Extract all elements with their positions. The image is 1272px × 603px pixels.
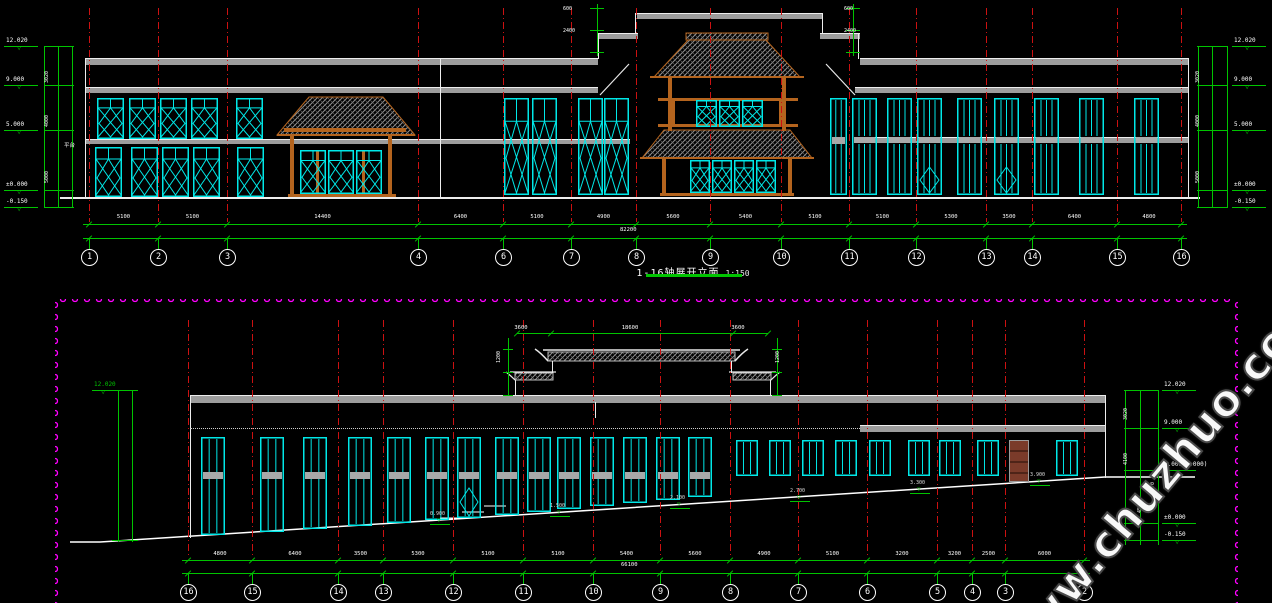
mullioned-window <box>348 437 372 526</box>
mullioned-window <box>495 437 519 515</box>
dim-text: 2400 <box>563 29 575 34</box>
mullioned-window <box>303 437 327 529</box>
chain-tick <box>772 349 782 350</box>
grid-line <box>937 320 938 558</box>
dim-text: 600 <box>844 7 853 12</box>
grid-line <box>383 320 384 558</box>
dim-text: 5100 <box>112 215 136 221</box>
axis-stem <box>710 238 711 249</box>
lattice-window <box>97 98 124 139</box>
chain-tick <box>503 349 513 350</box>
axis-bubble: 7 <box>563 249 580 266</box>
lattice-window <box>300 150 326 194</box>
dim-chain-line <box>1212 46 1213 207</box>
mullioned-window <box>527 437 551 512</box>
dim-chain-line <box>132 390 133 542</box>
dim-text: 3500 <box>997 215 1021 221</box>
grid-line <box>1181 8 1182 222</box>
entrance-window <box>994 98 1019 195</box>
dim-text: 4800 <box>208 552 232 558</box>
parapet-band <box>85 87 598 93</box>
elevation-marker-icon: ▽ <box>17 129 21 136</box>
vertical-dim: 1200 <box>776 351 781 363</box>
level-value: 9.000 <box>1234 77 1252 83</box>
axis-stem <box>158 238 159 249</box>
axis-bubble: 11 <box>841 249 858 266</box>
level-line <box>430 524 450 525</box>
lattice-window <box>578 98 603 195</box>
wall-line <box>190 395 191 538</box>
dim-text: 4800 <box>1137 215 1161 221</box>
mullioned-window <box>1034 98 1059 195</box>
wall-line <box>1188 58 1189 197</box>
small-window <box>908 440 930 476</box>
axis-stem <box>636 238 637 249</box>
dim-chain-line <box>777 338 778 396</box>
chain-tick <box>503 372 513 373</box>
parapet-band <box>855 87 1188 93</box>
grid-line <box>660 320 661 558</box>
mullioned-window <box>425 437 449 520</box>
lattice-window <box>719 100 740 127</box>
grid-line <box>798 320 799 558</box>
grid-line <box>453 320 454 558</box>
axis-bubble: 15 <box>1109 249 1126 266</box>
axis-bubble: 6 <box>859 584 876 601</box>
dim-total: 82200 <box>620 228 637 234</box>
small-window <box>869 440 891 476</box>
dim-text: 5300 <box>406 552 430 558</box>
dim-chain-line <box>1227 46 1228 207</box>
axis-bubble: 12 <box>908 249 925 266</box>
dim-chain-line <box>72 46 73 207</box>
cad-elevation-sheet: 1-16轴展开立面1:150 www.chuzhuo.com 123467891… <box>0 0 1272 603</box>
small-window <box>802 440 824 476</box>
chain-tick <box>772 395 782 396</box>
grid-line <box>503 8 504 222</box>
dim-text: 3600 <box>507 326 535 332</box>
timber-member <box>782 77 786 131</box>
wall-line <box>85 58 86 197</box>
elevation-marker-icon: ▽ <box>101 389 105 396</box>
mullioned-window <box>557 437 581 509</box>
axis-bubble: 2 <box>150 249 167 266</box>
partial-window <box>830 98 847 195</box>
dim-text: 5100 <box>546 552 570 558</box>
lattice-window <box>356 150 382 194</box>
grid-line <box>523 320 524 558</box>
vertical-dim: 5000 <box>45 171 50 183</box>
wall-line <box>60 197 1200 199</box>
elevation-marker-icon: ▽ <box>17 206 21 213</box>
small-window <box>736 440 758 476</box>
grid-line <box>781 8 782 222</box>
dim-text: 5600 <box>683 552 707 558</box>
dim-text: 5300 <box>939 215 963 221</box>
floor-dotline <box>190 428 860 430</box>
axis-stem <box>227 238 228 249</box>
chain-tick <box>1197 190 1228 191</box>
dim-total: 66100 <box>621 563 638 569</box>
mullioned-window <box>260 437 284 532</box>
level-value: 9.000 <box>6 77 24 83</box>
level-line <box>670 508 690 509</box>
dim-text: 3600 <box>724 326 752 332</box>
lattice-window <box>756 160 776 193</box>
chain-tick <box>503 395 513 396</box>
axis-stem <box>1181 238 1182 249</box>
axis-bubble: 12 <box>445 584 462 601</box>
vertical-dim: 4000 <box>1196 115 1201 127</box>
dim-text: 5100 <box>871 215 895 221</box>
grid-line <box>730 320 731 558</box>
axis-bubble: 8 <box>628 249 645 266</box>
axis-bubble: 13 <box>375 584 392 601</box>
elevation-marker-icon: ▽ <box>17 84 21 91</box>
lattice-window <box>95 147 122 197</box>
mullioned-window <box>1134 98 1159 195</box>
timber-member <box>788 158 792 195</box>
axis-bubble: 14 <box>1024 249 1041 266</box>
mullioned-window <box>688 437 712 497</box>
wall-line <box>598 33 599 59</box>
dim-text: 5400 <box>615 552 639 558</box>
axis-stem <box>252 573 253 584</box>
wall-line <box>552 361 553 373</box>
chain-tick <box>112 390 138 391</box>
axis-stem <box>916 238 917 249</box>
chain-tick <box>1197 130 1228 131</box>
lattice-window <box>131 147 158 197</box>
axis-stem <box>781 238 782 249</box>
timber-member <box>672 101 675 125</box>
lattice-window <box>504 98 529 195</box>
grid-line <box>227 8 228 222</box>
axis-stem <box>503 238 504 249</box>
timber-member <box>288 194 396 197</box>
small-window <box>835 440 857 476</box>
elevation-marker-icon: ▽ <box>17 189 21 196</box>
grid-line <box>986 8 987 222</box>
axis-stem <box>418 238 419 249</box>
axis-stem <box>89 238 90 249</box>
grid-line <box>418 8 419 222</box>
mullioned-window <box>887 98 912 195</box>
dim-text: 5100 <box>181 215 205 221</box>
level-value: 5.000 <box>6 122 24 128</box>
mullioned-window <box>957 98 982 195</box>
lattice-window <box>742 100 763 127</box>
axis-bubble: 10 <box>773 249 790 266</box>
axis-stem <box>1117 238 1118 249</box>
timber-member <box>662 158 666 195</box>
axis-bubble: 6 <box>495 249 512 266</box>
axis-stem <box>571 238 572 249</box>
axis-stem <box>593 573 594 584</box>
dim-text: 4900 <box>752 552 776 558</box>
vertical-dim: 3020 <box>1196 71 1201 83</box>
lattice-window <box>532 98 557 195</box>
grid-line <box>252 320 253 558</box>
grid-line <box>867 320 868 558</box>
vertical-dim: 3020 <box>45 71 50 83</box>
dim-text: 4900 <box>592 215 616 221</box>
chain-tick <box>44 130 74 131</box>
grid-line <box>188 320 189 558</box>
dim-text: 5400 <box>734 215 758 221</box>
wall-line <box>770 380 771 396</box>
axis-stem <box>730 573 731 584</box>
dim-text: 3200 <box>890 552 914 558</box>
grid-line <box>849 8 850 222</box>
dim-chain-line <box>58 46 59 207</box>
axis-bubble: 11 <box>515 584 532 601</box>
lattice-window <box>690 160 710 193</box>
dim-text: 5100 <box>821 552 845 558</box>
vertical-dim: 1200 <box>497 351 502 363</box>
axis-bubble: 8 <box>722 584 739 601</box>
parapet-band <box>85 58 598 65</box>
entrance-window <box>457 437 481 518</box>
axis-bubble: 9 <box>652 584 669 601</box>
axis-stem <box>453 573 454 584</box>
level-line <box>790 501 810 502</box>
dim-text: 5100 <box>803 215 827 221</box>
elevation-marker-icon: ▽ <box>17 45 21 52</box>
dim-text: 6400 <box>1063 215 1087 221</box>
chain-tick <box>44 85 74 86</box>
chain-tick <box>44 207 74 208</box>
lattice-window <box>712 160 732 193</box>
chain-tick <box>44 190 74 191</box>
small-window <box>939 440 961 476</box>
mullioned-window <box>201 437 225 535</box>
mullioned-window <box>623 437 647 503</box>
level-line <box>550 516 570 517</box>
grid-line <box>593 320 594 558</box>
chain-tick <box>590 8 604 9</box>
timber-member <box>388 135 392 197</box>
chain-tick <box>1197 207 1228 208</box>
grid-line <box>338 320 339 558</box>
chain-tick <box>1197 46 1228 47</box>
dim-text: 3500 <box>349 552 373 558</box>
grid-line <box>636 8 637 222</box>
elevation-marker-icon: ▽ <box>1245 129 1249 136</box>
elevation-marker-icon: ▽ <box>1245 84 1249 91</box>
axis-stem <box>188 573 189 584</box>
dim-text: 6400 <box>449 215 473 221</box>
parapet-band <box>860 58 1188 65</box>
axis-bubble: 14 <box>330 584 347 601</box>
axis-stem <box>849 238 850 249</box>
chain-tick <box>112 540 138 541</box>
wall-line <box>822 13 823 34</box>
wall-line <box>515 380 516 396</box>
dim-text: 600 <box>563 7 572 12</box>
axis-bubble: 13 <box>978 249 995 266</box>
axis-stem <box>798 573 799 584</box>
lattice-window <box>129 98 156 139</box>
dim-text: 14400 <box>311 215 335 221</box>
chain-tick <box>1197 85 1228 86</box>
small-window <box>769 440 791 476</box>
grid-line <box>89 8 90 222</box>
level-value: 5.000 <box>1234 122 1252 128</box>
parapet-band <box>598 33 638 39</box>
mullioned-window <box>1079 98 1104 195</box>
chain-tick <box>590 52 604 53</box>
grid-line <box>1117 8 1118 222</box>
note-text: 平台 <box>64 144 75 150</box>
timber-member <box>290 135 294 197</box>
elevation-marker-icon: ▽ <box>1245 45 1249 52</box>
vertical-dim: 4000 <box>45 115 50 127</box>
axis-bubble: 16 <box>180 584 197 601</box>
lattice-window <box>328 150 354 194</box>
grid-line <box>158 8 159 222</box>
lattice-window <box>236 98 263 139</box>
dim-chain-line <box>118 390 119 542</box>
wall-line <box>595 402 596 418</box>
lattice-window <box>734 160 754 193</box>
elevation-marker-icon: ▽ <box>1245 206 1249 213</box>
chain-tick <box>44 46 74 47</box>
dim-text: 5100 <box>476 552 500 558</box>
axis-stem <box>383 573 384 584</box>
vertical-dim: 5000 <box>1196 171 1201 183</box>
level-line <box>910 493 930 494</box>
lattice-window <box>160 98 187 139</box>
axis-stem <box>986 238 987 249</box>
dim-text: 6400 <box>283 552 307 558</box>
wall-line <box>858 33 859 59</box>
axis-stem <box>523 573 524 584</box>
chain-tick <box>772 372 782 373</box>
dim-text: 2400 <box>844 29 856 34</box>
axis-bubble: 10 <box>585 584 602 601</box>
lattice-window <box>191 98 218 139</box>
axis-bubble: 1 <box>81 249 98 266</box>
axis-stem <box>660 573 661 584</box>
lattice-window <box>696 100 717 127</box>
grid-line <box>571 8 572 222</box>
mullioned-window <box>852 98 877 195</box>
parapet-band <box>190 395 1106 403</box>
axis-bubble: 7 <box>790 584 807 601</box>
entrance-window <box>917 98 942 195</box>
wall-line <box>731 361 732 373</box>
axis-stem <box>867 573 868 584</box>
grid-line <box>1032 8 1033 222</box>
wall-line <box>440 58 441 197</box>
dim-chain-line <box>508 338 509 396</box>
lattice-window <box>604 98 629 195</box>
chain-tick <box>846 52 860 53</box>
axis-bubble: 3 <box>219 249 236 266</box>
timber-member <box>660 193 794 196</box>
axis-stem <box>1032 238 1033 249</box>
mullioned-window <box>387 437 411 523</box>
axis-bubble: 9 <box>702 249 719 266</box>
axis-bubble: 4 <box>410 249 427 266</box>
grid-line <box>916 8 917 222</box>
dim-text: 18600 <box>616 326 644 332</box>
chain-tick <box>590 30 604 31</box>
grid-line <box>710 8 711 222</box>
lattice-window <box>193 147 220 197</box>
dim-text: 5600 <box>661 215 685 221</box>
dim-text: 5100 <box>525 215 549 221</box>
timber-member <box>284 128 406 132</box>
lattice-window <box>162 147 189 197</box>
lattice-window <box>237 147 264 197</box>
axis-bubble: 15 <box>244 584 261 601</box>
axis-stem <box>338 573 339 584</box>
parapet-band <box>637 13 823 19</box>
elevation-marker-icon: ▽ <box>1245 189 1249 196</box>
